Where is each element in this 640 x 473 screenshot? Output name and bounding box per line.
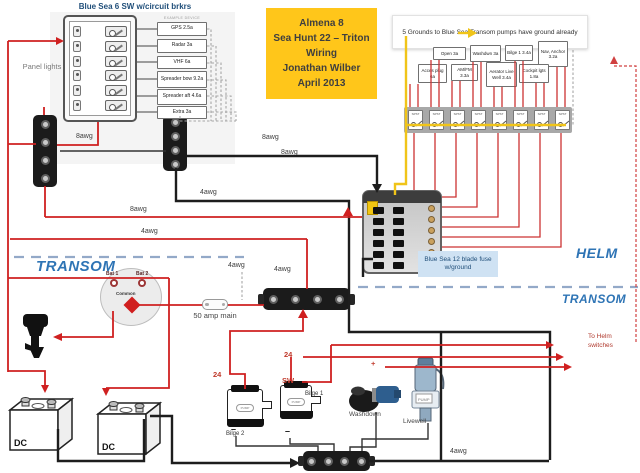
wire-label: SW xyxy=(282,376,294,385)
bus-terminal xyxy=(41,120,50,129)
pump-base xyxy=(280,411,313,419)
breaker-row xyxy=(73,25,127,38)
spst-switch: SPST xyxy=(555,110,570,130)
to-helm-label: To Helm switches xyxy=(588,332,630,350)
bat2-terminal xyxy=(138,279,146,287)
breaker-row xyxy=(73,84,127,97)
breaker-icon xyxy=(73,41,81,52)
outboard-motor-icon xyxy=(18,314,54,365)
switch-type-label: SPST xyxy=(514,112,527,116)
wire-label: 24 xyxy=(213,370,221,379)
spst-switch: SPST xyxy=(471,110,486,130)
pump-badge: PUMP xyxy=(287,398,305,406)
spst-switch: SPST xyxy=(408,110,423,130)
common-label: Common xyxy=(116,291,136,296)
main-fuse-label: 50 amp main xyxy=(193,311,237,320)
bus-terminal xyxy=(171,146,180,155)
distribution-bus-bar xyxy=(263,288,350,310)
title-line: Almena 8 xyxy=(266,16,377,31)
wire-label: 8awg xyxy=(76,133,93,140)
breaker-row xyxy=(73,55,127,68)
switch-lever xyxy=(542,120,549,126)
title-line: Jonathan Wilber xyxy=(266,61,377,76)
rocker-switch-icon xyxy=(105,56,127,67)
washdown-label: Washdown xyxy=(349,411,381,418)
fuse-device-box: AM/FM 3.3a xyxy=(451,64,478,81)
rocker-switch-icon xyxy=(105,85,127,96)
device-label-box: Spreader aft 4.6a xyxy=(157,89,207,105)
switch-type-label: SPST xyxy=(451,112,464,116)
breaker-row xyxy=(73,40,127,53)
wire-label: 8awg xyxy=(262,134,279,141)
bus-terminal xyxy=(291,295,300,304)
battery-2: DC xyxy=(94,398,164,465)
ground-bus-bar xyxy=(163,115,187,171)
bilge1-neg-mark: – xyxy=(285,426,290,436)
fuse-device-box: Aerator Live Well 3.4a xyxy=(486,62,517,87)
bilge1-label: Bilge 1 xyxy=(305,391,323,397)
breaker-icon xyxy=(73,56,81,67)
rocker-switch-icon xyxy=(105,100,127,111)
fuse-device-box: Cockpit lgts 1.8a xyxy=(519,64,549,83)
wire-label: 4awg xyxy=(200,189,217,196)
positive-bus-bar xyxy=(33,115,57,187)
pump-badge: PUMP xyxy=(418,397,430,402)
title-box: Almena 8 Sea Hunt 22 – Triton Wiring Jon… xyxy=(266,8,377,99)
panel-title: Blue Sea 6 SW w/circuit brkrs xyxy=(50,2,220,11)
switch-lever xyxy=(479,120,486,126)
spst-switch: SPST xyxy=(513,110,528,130)
main-fuse-symbol xyxy=(202,299,228,310)
zone-transom-right: TRANSOM xyxy=(562,292,626,306)
switch-strip: SPSTSPSTSPSTSPSTSPSTSPSTSPSTSPST xyxy=(404,107,572,133)
breaker-icon xyxy=(73,26,81,37)
bus-terminal xyxy=(41,138,50,147)
wire-label: 8awg xyxy=(130,206,147,213)
bus-terminal xyxy=(324,457,333,466)
switch-type-label: SPST xyxy=(556,112,569,116)
pump-cap xyxy=(231,385,258,392)
switch-lever xyxy=(500,120,507,126)
wiring-diagram: Blue Sea 6 SW w/circuit brkrs Panel ligh… xyxy=(0,0,640,473)
battery-1: DC xyxy=(6,394,76,461)
wire-label: + xyxy=(371,359,375,368)
device-label-box: Radar 3a xyxy=(157,39,207,53)
spst-switch: SPST xyxy=(429,110,444,130)
device-label-box: GPS 2.5a xyxy=(157,22,207,36)
zone-transom-left: TRANSOM xyxy=(36,258,115,275)
spst-switch: SPST xyxy=(534,110,549,130)
pump-badge: PUMP xyxy=(236,404,254,412)
fuse-device-box: Bilge 1 3.4a xyxy=(505,45,533,61)
bus-terminal xyxy=(307,457,316,466)
fuse-device-box: Acces plug 6a xyxy=(418,64,447,83)
bus-terminal xyxy=(41,156,50,165)
rocker-switch-icon xyxy=(105,70,127,81)
device-label-box: Extra 3a xyxy=(157,106,207,119)
bus-terminal xyxy=(171,132,180,141)
bus-terminal xyxy=(313,295,322,304)
bus-terminal xyxy=(357,457,366,466)
wire-label: 4awg xyxy=(228,262,245,269)
fuse-block-label: Blue Sea 12 blade fuse w/ground xyxy=(418,251,498,277)
fuse-device-box: Open 3a xyxy=(433,47,466,60)
zone-helm: HELM xyxy=(576,245,618,261)
bat2-label: Bat 2 xyxy=(136,271,148,277)
switch-type-label: SPST xyxy=(472,112,485,116)
spst-switch: SPST xyxy=(450,110,465,130)
bat1-terminal xyxy=(110,279,118,287)
switch-lever xyxy=(521,120,528,126)
pump-outlet xyxy=(262,401,272,409)
wire-label: 4awg xyxy=(274,266,291,273)
switch-type-label: SPST xyxy=(430,112,443,116)
battery1-dc-label: DC xyxy=(14,438,27,448)
switch-panel-rows xyxy=(69,21,131,116)
switch-lever xyxy=(458,120,465,126)
switch-type-label: SPST xyxy=(493,112,506,116)
rocker-switch-icon xyxy=(105,26,127,37)
switch-lever xyxy=(437,120,444,126)
panel-lights-label: Panel lights xyxy=(22,62,62,72)
breaker-icon xyxy=(73,70,81,81)
breaker-row xyxy=(73,69,127,82)
device-label-box: Spreader bow 9.2a xyxy=(157,71,207,88)
wire-label: 4awg xyxy=(141,228,158,235)
device-label-box: VHF 6a xyxy=(157,56,207,69)
bus-terminal xyxy=(171,160,180,169)
bus-terminal xyxy=(41,174,50,183)
wire-label: 4awg xyxy=(450,448,467,455)
title-line: Wiring xyxy=(266,46,377,61)
title-line: April 2013 xyxy=(266,76,377,91)
fuse-device-box: Washdwn 3a xyxy=(470,45,501,62)
bus-terminal xyxy=(340,457,349,466)
wire-label: 8awg xyxy=(281,149,298,156)
breaker-icon xyxy=(73,100,81,111)
title-line: Sea Hunt 22 – Triton xyxy=(266,31,377,46)
breaker-row xyxy=(73,99,127,112)
wire-label: 24 xyxy=(284,350,292,359)
bilge-pump-2: PUMP xyxy=(227,389,263,427)
transom-ground-bus-bar xyxy=(303,451,370,471)
switch-type-label: SPST xyxy=(535,112,548,116)
rocker-switch-icon xyxy=(105,41,127,52)
livewell-label: Livewell xyxy=(403,418,426,425)
fuse-slots xyxy=(373,207,404,269)
bat1-label: Bat 1 xyxy=(106,271,118,277)
spst-switch: SPST xyxy=(492,110,507,130)
device-column-header: EXAMPLE DEVICE xyxy=(157,16,207,20)
breaker-icon xyxy=(73,85,81,96)
switch-lever xyxy=(416,120,423,126)
switch-lever xyxy=(563,120,570,126)
switch-type-label: SPST xyxy=(409,112,422,116)
battery2-dc-label: DC xyxy=(102,442,115,452)
red-dashed-arrow xyxy=(610,56,618,64)
bus-terminal xyxy=(335,295,344,304)
switch-panel xyxy=(63,15,137,122)
bus-terminal xyxy=(269,295,278,304)
bilge2-neg-mark: – xyxy=(231,424,236,434)
